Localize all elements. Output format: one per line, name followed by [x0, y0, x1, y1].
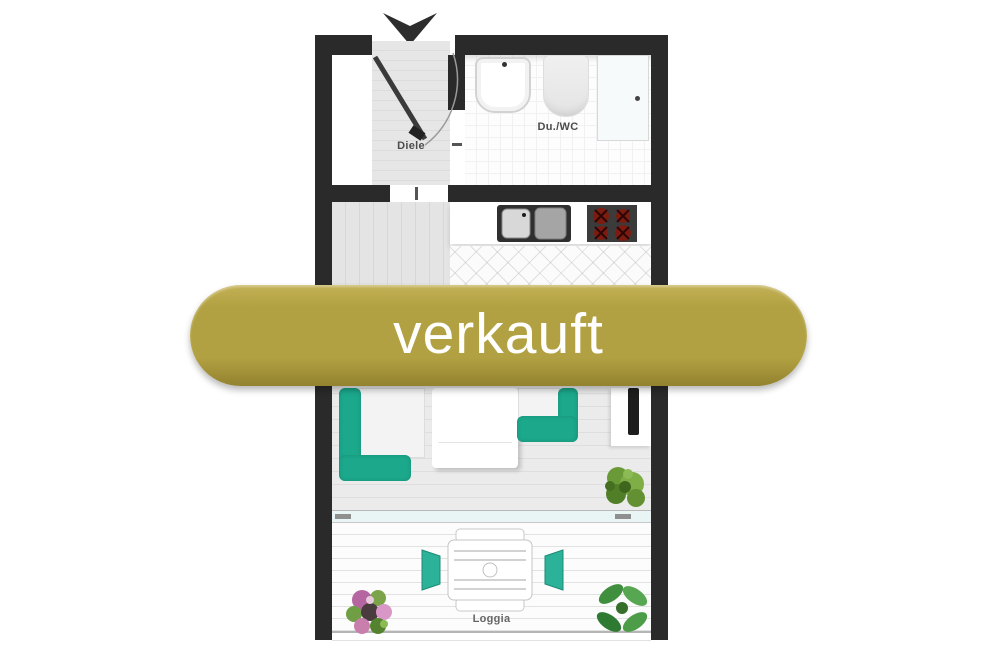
loggia-chair-left	[422, 550, 440, 590]
toilet	[543, 55, 589, 117]
loggia-label: Loggia	[332, 613, 651, 625]
sold-banner-label: verkauft	[393, 301, 604, 367]
loggia-table-set	[420, 528, 565, 612]
tv	[628, 388, 639, 435]
diele-door-frame-tick	[415, 187, 418, 200]
balcony-window	[332, 510, 651, 523]
loggia-plant-icon	[593, 578, 651, 640]
kitchen-sink	[497, 205, 571, 242]
armchair-cushion	[518, 388, 560, 418]
shower-drain-icon	[635, 96, 640, 101]
corridor-floor	[332, 202, 450, 290]
bed	[432, 388, 518, 468]
flower-pot-icon	[340, 580, 400, 640]
potted-plant-icon	[598, 460, 652, 510]
door-leaf	[375, 57, 425, 139]
window-stub-left	[335, 514, 351, 519]
bath-label: Du./WC	[465, 121, 651, 133]
sold-banner: verkauft	[190, 285, 807, 386]
sink-basin-left	[502, 209, 530, 238]
sofa-cushions	[359, 388, 425, 458]
kitchen-floor-tiles	[450, 246, 651, 290]
corner-sofa-seat	[339, 455, 411, 481]
entry-door-swing	[365, 43, 460, 188]
armchair-front	[517, 416, 577, 442]
wall-top-left	[315, 35, 372, 55]
wash-basin	[475, 57, 531, 113]
diele-label: Diele	[372, 140, 450, 152]
cooktop	[587, 205, 637, 242]
table-parasol-hole	[483, 563, 497, 577]
sink-tap-icon	[522, 213, 526, 217]
sink-basin-right	[535, 208, 566, 239]
wall-kitchen-divider	[448, 185, 668, 202]
window-stub-right	[615, 514, 631, 519]
door-swing-arc	[425, 53, 457, 145]
wall-top-right	[455, 35, 668, 55]
basin-tap-icon	[502, 62, 507, 67]
loggia-chair-right	[545, 550, 563, 590]
